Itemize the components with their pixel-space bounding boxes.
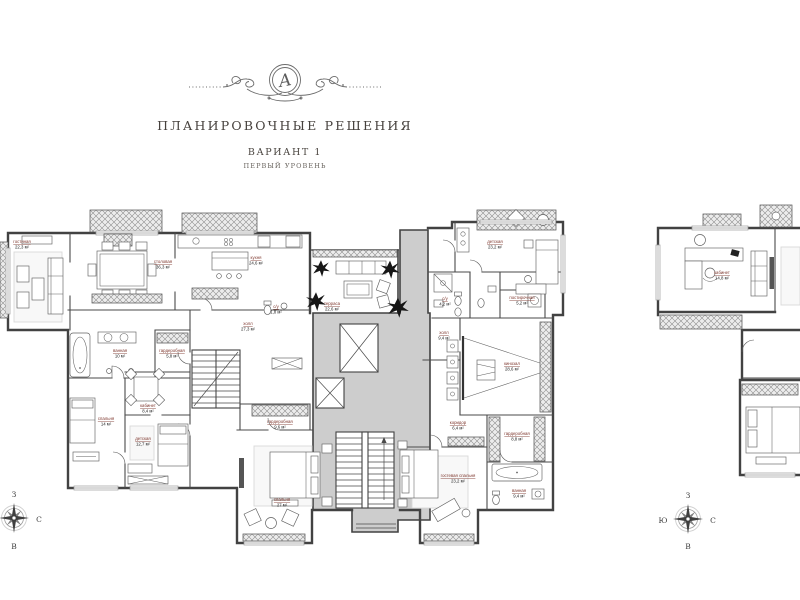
compass-right: З Ю С В [659, 491, 717, 551]
svg-text:5,2 м²: 5,2 м² [516, 301, 528, 306]
compass-left: З С В [0, 490, 42, 551]
corridor-closet [192, 288, 238, 299]
svg-text:4,2 м²: 4,2 м² [439, 302, 451, 307]
balconies [0, 210, 556, 318]
svg-text:гардеробная: гардеробная [504, 431, 530, 436]
bed [536, 240, 558, 284]
svg-text:1,8 м²: 1,8 м² [270, 310, 282, 315]
compass-north: С [710, 516, 716, 525]
cinema-room [447, 322, 551, 412]
room-label: гардеробная5,8 м² [159, 348, 185, 359]
svg-text:детская: детская [487, 239, 503, 244]
svg-text:24,6 м²: 24,6 м² [249, 261, 264, 266]
plant-icon [312, 260, 330, 277]
svg-text:кабинет: кабинет [714, 270, 730, 275]
bathroom-left [70, 332, 136, 377]
room-label: столовая36,3 м² [154, 259, 173, 270]
compass-rose-icon [673, 504, 703, 534]
room-label: с/у1,8 м² [270, 304, 282, 315]
svg-text:столовая: столовая [154, 259, 173, 264]
compass-west: З [12, 490, 17, 499]
svg-text:27 м²: 27 м² [277, 503, 288, 508]
room-label: гардеробная8,8 м² [504, 431, 530, 442]
room-label: терраса22,6 м² [324, 301, 341, 312]
adjacent-unit [656, 205, 800, 477]
childrens-room-top [457, 228, 558, 294]
floor-plan: гостиная22,3 м² столовая36,3 м² кухня24,… [0, 0, 800, 600]
tv [770, 257, 775, 289]
sofa [751, 251, 767, 296]
svg-text:6,4 м²: 6,4 м² [452, 426, 464, 431]
svg-text:детская: детская [135, 436, 151, 441]
kitchen [178, 235, 302, 299]
svg-text:постирочная: постирочная [509, 295, 535, 300]
sideboard [92, 294, 162, 303]
svg-text:14,8 м²: 14,8 м² [715, 276, 730, 281]
bathroom-br [492, 464, 544, 505]
room-label: ванная9,4 м² [512, 488, 527, 499]
svg-text:5,8 м²: 5,8 м² [166, 354, 178, 359]
svg-text:28,6 м²: 28,6 м² [505, 367, 520, 372]
room-label: кинозал28,6 м² [504, 361, 520, 372]
bedroom-127 [128, 424, 188, 484]
svg-text:ванная: ванная [113, 348, 128, 353]
dining-room [88, 242, 162, 303]
svg-text:36,3 м²: 36,3 м² [156, 265, 171, 270]
compass-west: З [686, 491, 691, 500]
svg-text:22,6 м²: 22,6 м² [325, 307, 340, 312]
office [685, 235, 800, 306]
svg-text:9,4 м²: 9,4 м² [513, 494, 525, 499]
toilet [455, 297, 461, 306]
svg-text:кинозал: кинозал [504, 361, 520, 366]
svg-text:с/у: с/у [273, 304, 279, 309]
svg-text:27,3 м²: 27,3 м² [241, 327, 256, 332]
svg-text:ванная: ванная [512, 488, 527, 493]
room-label: холл9,4 м² [438, 330, 450, 341]
room-label: коридор6,4 м² [450, 420, 467, 431]
bidet [455, 308, 461, 316]
svg-text:коридор: коридор [450, 420, 467, 425]
room-label: ванная10 м² [113, 348, 128, 359]
svg-text:гостиная: гостиная [13, 239, 31, 244]
tv [239, 458, 244, 488]
svg-text:14 м²: 14 м² [101, 422, 112, 427]
svg-text:терраса: терраса [324, 301, 341, 306]
compass-south: Ю [659, 516, 668, 525]
compass-east: В [685, 542, 691, 551]
svg-text:холл: холл [243, 321, 253, 326]
room-label: гардеробная9,6 м² [267, 419, 293, 430]
room-label: кухня24,6 м² [249, 255, 264, 266]
kitchen-island [212, 252, 248, 270]
study [125, 368, 164, 405]
svg-text:12,7 м²: 12,7 м² [136, 442, 151, 447]
svg-text:спальня: спальня [274, 497, 291, 502]
plan-page: A ПЛАНИРОВОЧНЫЕ РЕШЕНИЯ ВАРИАНТ 1 ПЕРВЫЙ… [0, 0, 800, 600]
svg-text:гостевая спальня: гостевая спальня [441, 473, 476, 478]
compass-north: С [36, 515, 42, 524]
svg-text:холл: холл [439, 330, 449, 335]
bedroom-14 [70, 398, 99, 461]
terrace [306, 260, 409, 318]
terrace-railing [312, 250, 398, 257]
guest-bedroom [398, 437, 484, 541]
svg-text:9,4 м²: 9,4 м² [438, 336, 450, 341]
compass-rose-icon [0, 503, 29, 533]
svg-text:спальня: спальня [98, 416, 115, 421]
projector [477, 360, 495, 380]
svg-text:с/у: с/у [442, 296, 448, 301]
svg-text:22,3 м²: 22,3 м² [15, 245, 30, 250]
svg-text:гардеробная: гардеробная [159, 348, 185, 353]
room-label: гостиная22,3 м² [13, 239, 31, 250]
compass-east: В [11, 542, 17, 551]
room-label: детская12,7 м² [135, 436, 151, 447]
svg-text:кабинет: кабинет [140, 403, 156, 408]
room-label: спальня14 м² [98, 416, 115, 427]
room-label: кабинет8,4 м² [140, 403, 156, 414]
svg-text:8,8 м²: 8,8 м² [511, 437, 523, 442]
hall [192, 350, 302, 408]
svg-text:кухня: кухня [251, 255, 263, 260]
svg-text:гардеробная: гардеробная [267, 419, 293, 424]
room-label: детская23,2 м² [487, 239, 503, 250]
svg-text:9,6 м²: 9,6 м² [274, 425, 286, 430]
wardrobe-58 [157, 333, 188, 343]
room-label: холл27,3 м² [241, 321, 256, 332]
main-staircase [336, 432, 394, 508]
svg-text:23,2 м²: 23,2 м² [451, 479, 466, 484]
svg-text:8,4 м²: 8,4 м² [142, 409, 154, 414]
wardrobe-strip [252, 405, 308, 416]
fragment-bedroom [742, 384, 800, 464]
svg-text:10 м²: 10 м² [115, 354, 126, 359]
svg-text:23,2 м²: 23,2 м² [488, 245, 503, 250]
room-label: с/у4,2 м² [439, 296, 451, 307]
room-label: кабинет14,8 м² [714, 270, 730, 281]
